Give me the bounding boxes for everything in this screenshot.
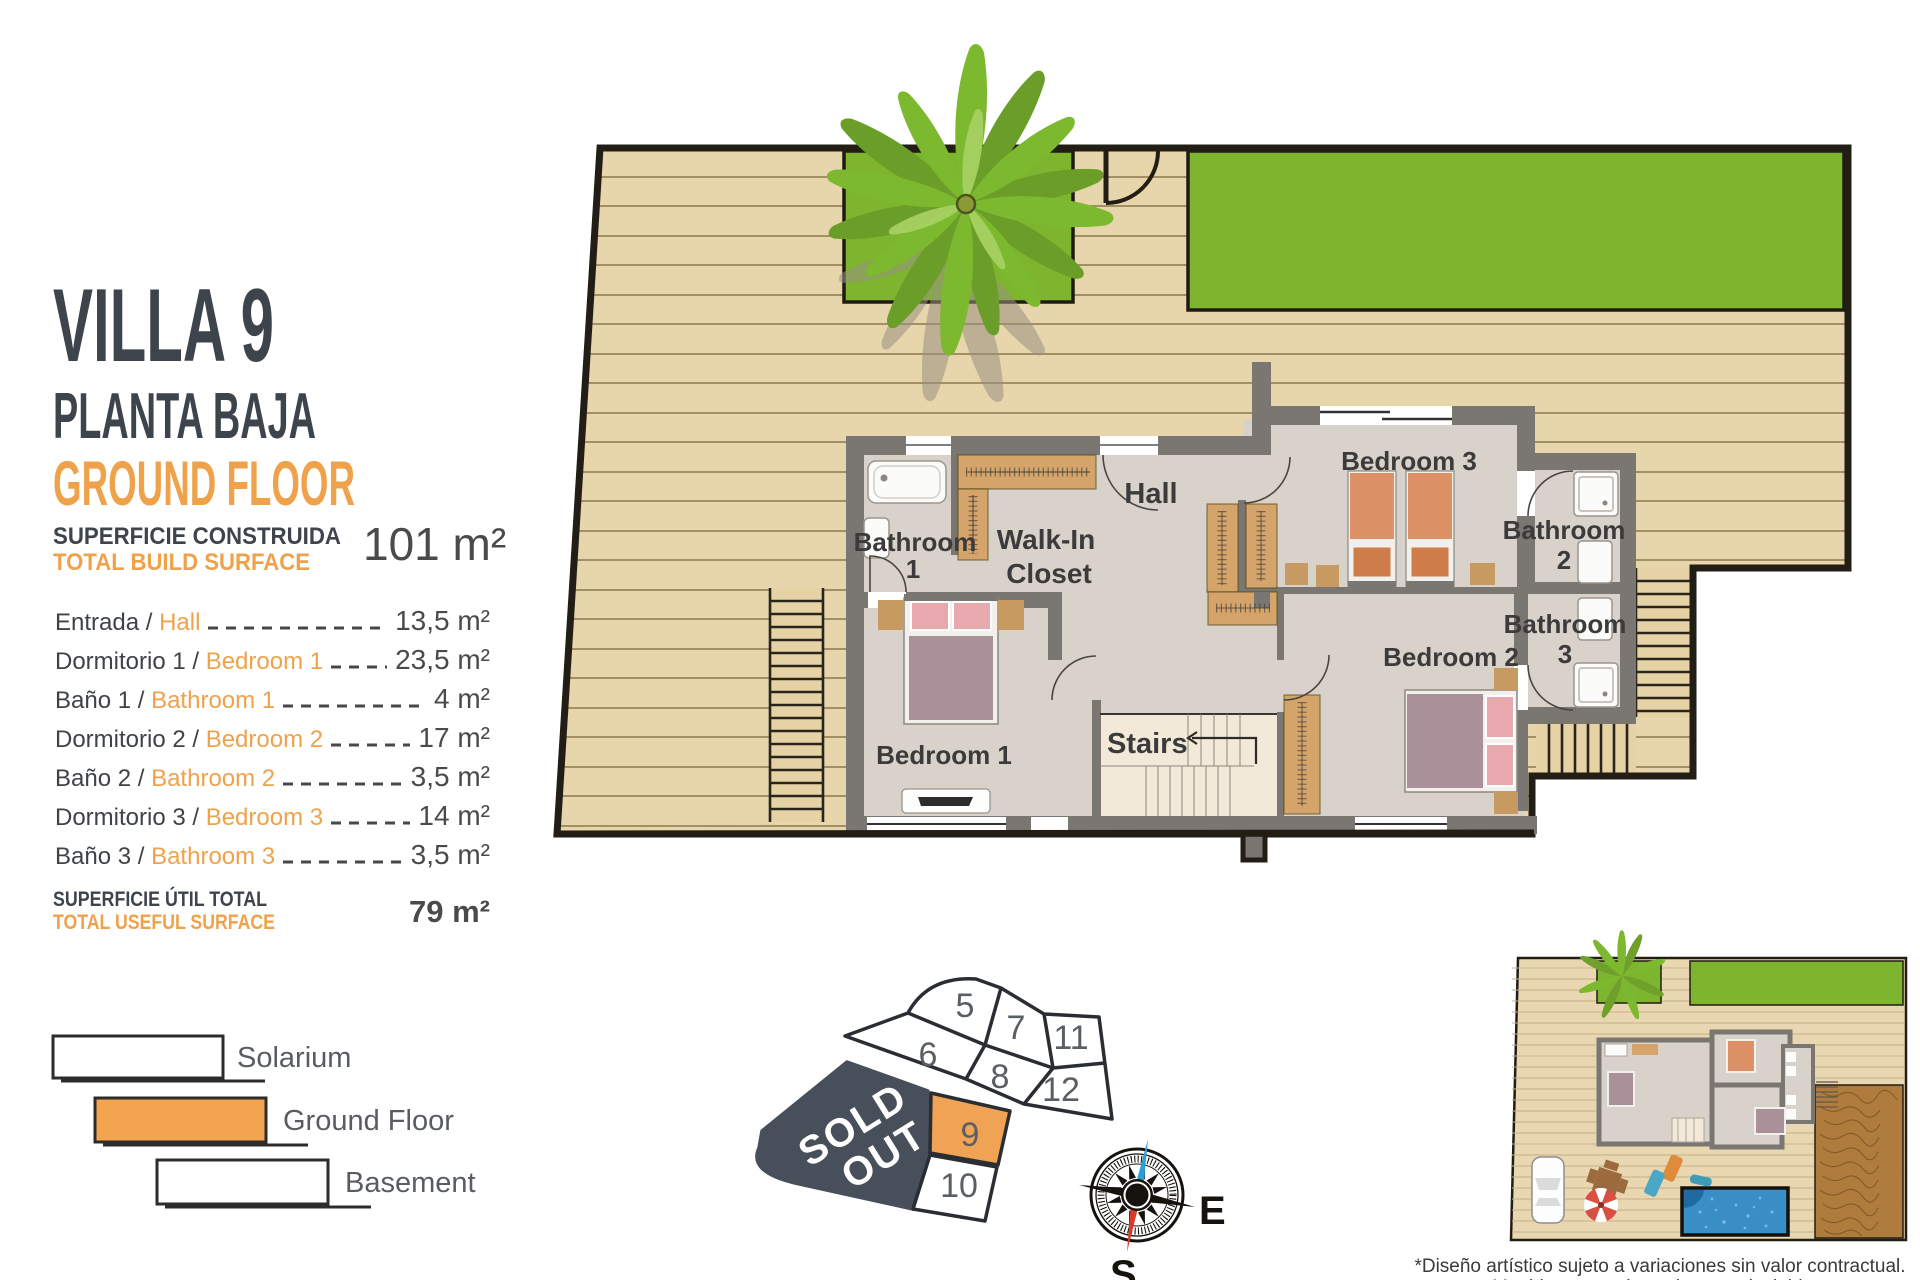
svg-text:101 m²: 101 m² bbox=[363, 518, 506, 570]
svg-text:PLANTA BAJA: PLANTA BAJA bbox=[53, 379, 316, 452]
svg-text:Baño 1 / Bathroom 1: Baño 1 / Bathroom 1 bbox=[55, 687, 275, 714]
svg-text:E: E bbox=[1199, 1189, 1226, 1233]
svg-text:Walk-In: Walk-In bbox=[997, 524, 1096, 555]
svg-text:Bedroom 1: Bedroom 1 bbox=[876, 740, 1012, 770]
svg-text:Bathroom: Bathroom bbox=[854, 527, 977, 557]
svg-text:10: 10 bbox=[940, 1167, 978, 1205]
svg-text:2: 2 bbox=[1557, 545, 1571, 575]
svg-text:1: 1 bbox=[906, 554, 920, 584]
svg-text:Dormitorio 3 / Bedroom 3: Dormitorio 3 / Bedroom 3 bbox=[55, 804, 323, 831]
svg-text:79 m²: 79 m² bbox=[409, 894, 490, 929]
svg-text:SUPERFICIE CONSTRUIDA: SUPERFICIE CONSTRUIDA bbox=[53, 523, 341, 550]
svg-text:4 m²: 4 m² bbox=[434, 683, 490, 714]
svg-text:3: 3 bbox=[1558, 639, 1572, 669]
svg-text:Hall: Hall bbox=[1124, 478, 1177, 510]
svg-text:Basement: Basement bbox=[345, 1167, 476, 1199]
svg-text:5: 5 bbox=[956, 987, 975, 1025]
svg-text:Bedroom 3: Bedroom 3 bbox=[1341, 446, 1477, 476]
svg-text:3,5 m²: 3,5 m² bbox=[411, 839, 490, 870]
svg-text:Closet: Closet bbox=[1006, 558, 1092, 589]
svg-text:17 m²: 17 m² bbox=[418, 722, 490, 753]
svg-text:Dormitorio 2 / Bedroom 2: Dormitorio 2 / Bedroom 2 bbox=[55, 726, 323, 753]
svg-text:VILLA 9: VILLA 9 bbox=[53, 268, 274, 384]
svg-text:Bathroom: Bathroom bbox=[1504, 609, 1627, 639]
svg-text:3,5 m²: 3,5 m² bbox=[411, 761, 490, 792]
svg-text:S: S bbox=[1110, 1253, 1137, 1280]
svg-text:TOTAL BUILD SURFACE: TOTAL BUILD SURFACE bbox=[53, 549, 310, 576]
svg-text:8: 8 bbox=[991, 1058, 1010, 1096]
svg-text:*Diseño artístico sujeto a var: *Diseño artístico sujeto a variaciones s… bbox=[1414, 1256, 1905, 1277]
svg-text:14 m²: 14 m² bbox=[418, 800, 490, 831]
svg-text:Baño 2 / Bathroom 2: Baño 2 / Bathroom 2 bbox=[55, 765, 275, 792]
svg-text:11: 11 bbox=[1053, 1019, 1088, 1057]
svg-text:12: 12 bbox=[1042, 1071, 1080, 1109]
svg-text:Entrada / Hall: Entrada / Hall bbox=[55, 609, 200, 636]
svg-text:Bathroom: Bathroom bbox=[1503, 515, 1626, 545]
svg-text:9: 9 bbox=[961, 1116, 980, 1154]
svg-text:GROUND FLOOR: GROUND FLOOR bbox=[53, 449, 355, 519]
svg-text:13,5 m²: 13,5 m² bbox=[395, 605, 490, 636]
svg-text:Stairs: Stairs bbox=[1107, 728, 1188, 760]
svg-text:Baño 3 / Bathroom 3: Baño 3 / Bathroom 3 bbox=[55, 843, 275, 870]
svg-text:Solarium: Solarium bbox=[237, 1042, 351, 1074]
svg-text:Ground Floor: Ground Floor bbox=[283, 1105, 454, 1137]
svg-text:SUPERFICIE ÚTIL TOTAL: SUPERFICIE ÚTIL TOTAL bbox=[53, 887, 267, 911]
svg-text:7: 7 bbox=[1007, 1009, 1026, 1047]
svg-text:6: 6 bbox=[919, 1036, 938, 1074]
svg-text:TOTAL USEFUL SURFACE: TOTAL USEFUL SURFACE bbox=[53, 911, 275, 934]
svg-text:Bedroom 2: Bedroom 2 bbox=[1383, 642, 1519, 672]
svg-text:23,5 m²: 23,5 m² bbox=[395, 644, 490, 675]
svg-text:Dormitorio 1 / Bedroom 1: Dormitorio 1 / Bedroom 1 bbox=[55, 648, 323, 675]
